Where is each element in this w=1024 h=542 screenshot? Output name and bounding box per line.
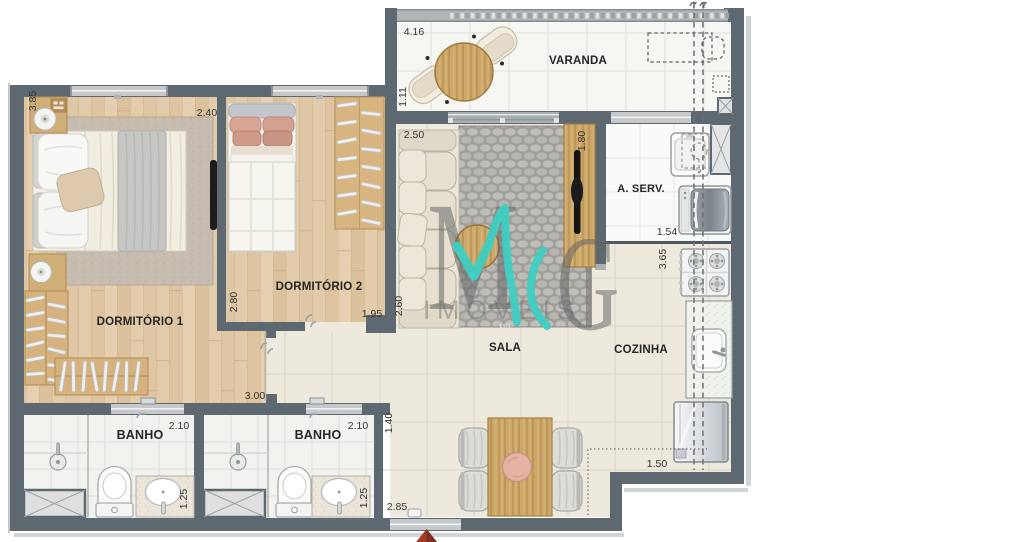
- svg-text:DORMITÓRIO 2: DORMITÓRIO 2: [276, 280, 363, 293]
- svg-text:BANHO: BANHO: [295, 428, 342, 442]
- svg-text:G: G: [557, 208, 620, 359]
- svg-text:1.54: 1.54: [657, 226, 678, 238]
- svg-text:2.10: 2.10: [348, 420, 369, 432]
- svg-text:COZINHA: COZINHA: [614, 344, 668, 356]
- svg-text:4.16: 4.16: [404, 26, 425, 38]
- svg-text:1.40: 1.40: [383, 413, 395, 434]
- svg-text:DORMITÓRIO 1: DORMITÓRIO 1: [97, 315, 184, 328]
- svg-text:2.40: 2.40: [197, 107, 218, 119]
- svg-text:3.00: 3.00: [245, 390, 266, 402]
- svg-text:1.80: 1.80: [576, 131, 588, 152]
- svg-text:VARANDA: VARANDA: [549, 55, 607, 67]
- svg-text:A. SERV.: A. SERV.: [617, 183, 664, 195]
- svg-text:1.95: 1.95: [362, 308, 383, 320]
- svg-text:SALA: SALA: [489, 342, 521, 354]
- svg-text:BANHO: BANHO: [117, 428, 164, 442]
- svg-text:1.25: 1.25: [358, 488, 370, 509]
- svg-text:2.60: 2.60: [393, 296, 405, 317]
- svg-text:IMÓVEIS: IMÓVEIS: [423, 294, 581, 325]
- svg-text:3.65: 3.65: [657, 249, 669, 270]
- svg-text:2.85: 2.85: [387, 501, 408, 513]
- svg-text:MG: MG: [499, 324, 510, 331]
- svg-text:2.80: 2.80: [228, 292, 240, 313]
- svg-text:2.10: 2.10: [169, 420, 190, 432]
- svg-text:2.50: 2.50: [404, 129, 425, 141]
- svg-text:3.85: 3.85: [27, 91, 39, 112]
- svg-text:1.50: 1.50: [647, 458, 668, 470]
- svg-text:1.25: 1.25: [178, 489, 190, 510]
- svg-text:1.11: 1.11: [397, 87, 409, 107]
